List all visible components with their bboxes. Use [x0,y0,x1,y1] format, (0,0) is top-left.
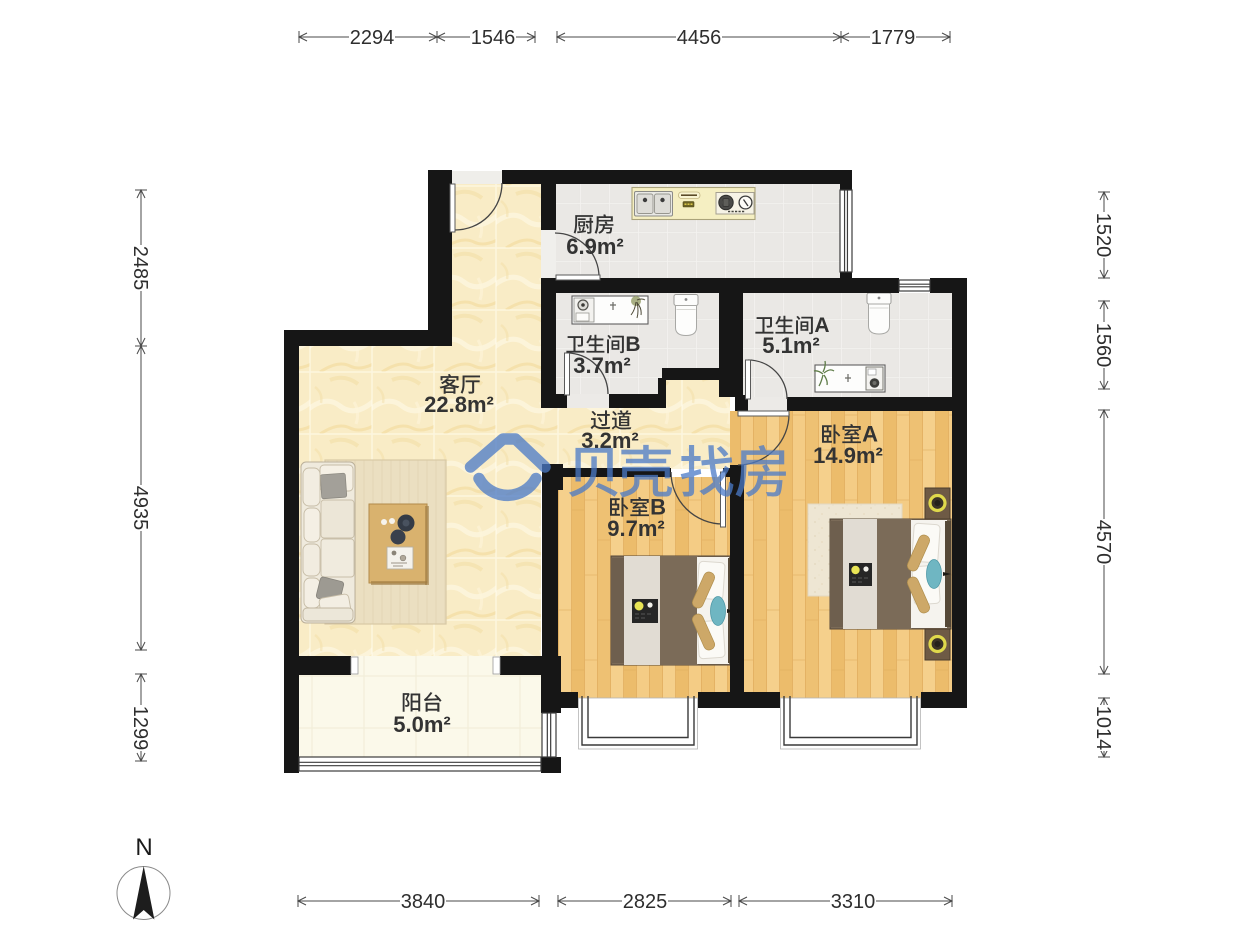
svg-text:2825: 2825 [623,891,668,913]
svg-text:4935: 4935 [129,486,151,531]
svg-text:2485: 2485 [129,246,151,291]
svg-text:2294: 2294 [350,27,395,49]
svg-text:1014: 1014 [1092,706,1114,751]
svg-text:1546: 1546 [471,27,516,49]
svg-text:1520: 1520 [1092,213,1114,258]
svg-text:6.9m²: 6.9m² [566,234,623,259]
svg-text:22.8m²: 22.8m² [424,392,494,417]
svg-text:9.7m²: 9.7m² [607,516,664,541]
svg-text:3840: 3840 [401,891,446,913]
svg-text:1299: 1299 [129,706,151,751]
svg-text:1779: 1779 [871,27,916,49]
svg-text:5.1m²: 5.1m² [762,333,819,358]
svg-text:1560: 1560 [1092,323,1114,368]
svg-text:3310: 3310 [831,891,876,913]
svg-text:3.7m²: 3.7m² [573,353,630,378]
svg-text:N: N [135,834,152,861]
svg-text:4570: 4570 [1092,520,1114,565]
svg-text:4456: 4456 [677,27,722,49]
svg-text:14.9m²: 14.9m² [813,443,883,468]
svg-text:5.0m²: 5.0m² [393,712,450,737]
